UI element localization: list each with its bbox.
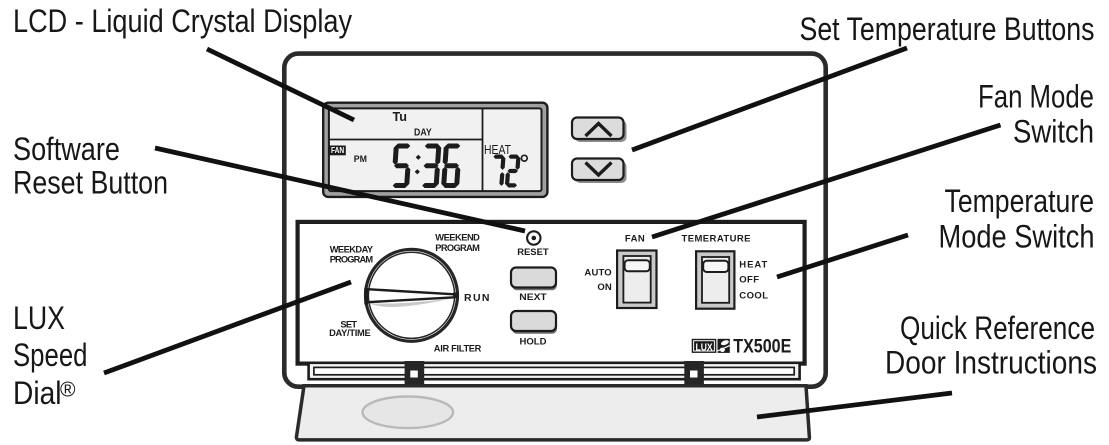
svg-text:Fan Mode: Fan Mode: [978, 79, 1094, 115]
svg-text:Reset Button: Reset Button: [13, 165, 168, 201]
svg-text:NEXT: NEXT: [519, 292, 547, 303]
svg-text:DAY/TIME: DAY/TIME: [329, 328, 371, 338]
svg-text:LUX: LUX: [696, 341, 713, 353]
svg-text:RUN: RUN: [464, 292, 490, 304]
svg-text:HOLD: HOLD: [520, 337, 547, 348]
svg-text:ON: ON: [597, 282, 611, 293]
svg-text:®: ®: [60, 379, 76, 402]
svg-text:PROGRAM: PROGRAM: [330, 254, 374, 264]
svg-text:HEAT: HEAT: [739, 260, 767, 271]
svg-text:LUX: LUX: [13, 300, 65, 336]
svg-text:WEEKDAY: WEEKDAY: [330, 244, 374, 254]
svg-text:Door Instructions: Door Instructions: [885, 345, 1097, 381]
svg-text:LCD - Liquid Crystal Display: LCD - Liquid Crystal Display: [13, 3, 352, 39]
svg-text:Switch: Switch: [1013, 114, 1094, 150]
svg-text:FAN: FAN: [331, 146, 344, 155]
svg-text:COOL: COOL: [739, 290, 768, 301]
svg-text:Tu: Tu: [393, 110, 408, 124]
svg-text:TEMERATURE: TEMERATURE: [682, 234, 751, 245]
svg-text:Speed: Speed: [13, 337, 88, 373]
svg-text:AUTO: AUTO: [584, 268, 611, 279]
svg-text:WEEKEND: WEEKEND: [435, 233, 480, 243]
svg-text:Dial: Dial: [13, 375, 62, 411]
svg-text:Set Temperature Buttons: Set Temperature Buttons: [800, 11, 1095, 47]
svg-text:OFF: OFF: [739, 274, 759, 285]
svg-text:FAN: FAN: [625, 234, 645, 245]
svg-text:PROGRAM: PROGRAM: [435, 243, 480, 253]
svg-text:DAY: DAY: [414, 127, 432, 139]
svg-text:Software: Software: [13, 131, 120, 167]
svg-text:TX500E: TX500E: [733, 336, 791, 358]
svg-text:RESET: RESET: [517, 247, 549, 258]
svg-text:Quick Reference: Quick Reference: [900, 310, 1095, 346]
svg-text:AIR FILTER: AIR FILTER: [434, 344, 482, 354]
svg-text:PM: PM: [354, 154, 367, 164]
svg-text:Mode Switch: Mode Switch: [939, 219, 1095, 255]
svg-text:Temperature: Temperature: [945, 183, 1095, 219]
